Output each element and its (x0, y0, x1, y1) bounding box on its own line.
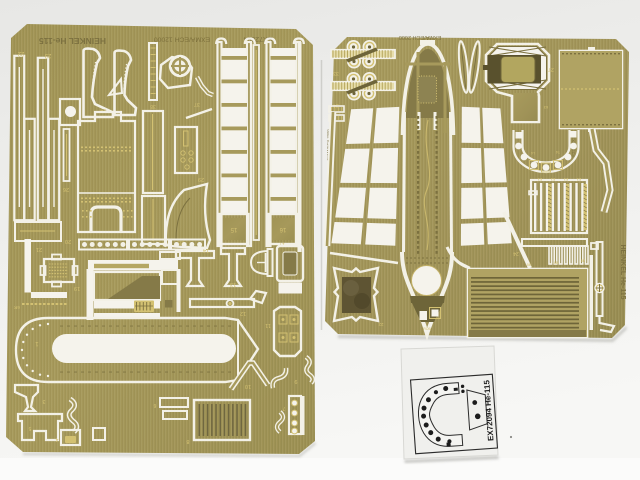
svg-text:63: 63 (543, 105, 548, 110)
svg-text:20: 20 (65, 238, 71, 244)
svg-text:33: 33 (333, 70, 339, 76)
svg-text:38: 38 (150, 103, 156, 109)
svg-text:HEINKEL He-115: HEINKEL He-115 (619, 244, 626, 299)
svg-text:5B: 5B (527, 263, 532, 267)
svg-text:13: 13 (230, 281, 236, 287)
svg-text:6R: 6R (13, 305, 20, 310)
svg-text:6: 6 (153, 402, 156, 408)
svg-text:22: 22 (378, 322, 384, 327)
svg-text:37: 37 (194, 101, 200, 107)
svg-text:T4: T4 (556, 150, 560, 154)
svg-text:23: 23 (44, 52, 51, 58)
svg-text:16: 16 (279, 226, 286, 232)
svg-text:6B: 6B (554, 261, 559, 265)
svg-text:E3: E3 (551, 177, 555, 181)
svg-text:EXMA/ECH 2000: EXMA/ECH 2000 (399, 34, 442, 40)
svg-text:11: 11 (265, 322, 271, 328)
svg-text:8B: 8B (581, 259, 586, 263)
svg-text:21: 21 (36, 246, 42, 252)
svg-text:4: 4 (55, 436, 58, 442)
svg-text:3: 3 (42, 398, 45, 404)
svg-text:8: 8 (186, 438, 189, 444)
svg-text:5: 5 (28, 425, 31, 431)
svg-text:9: 9 (294, 378, 297, 384)
svg-text:L4: L4 (531, 151, 535, 155)
svg-text:7: 7 (282, 405, 285, 411)
svg-text:HEINKEL He-115: HEINKEL He-115 (39, 36, 106, 46)
svg-text:15: 15 (230, 226, 237, 232)
svg-text:10: 10 (245, 383, 251, 389)
svg-text:24: 24 (513, 250, 519, 256)
svg-text:26: 26 (63, 186, 69, 192)
svg-text:14: 14 (203, 247, 209, 253)
svg-text:12: 12 (240, 310, 246, 316)
svg-text:19: 19 (74, 285, 80, 291)
svg-text:EXMA/ECH 12000: EXMA/ECH 12000 (154, 36, 211, 43)
svg-text:E3: E3 (564, 177, 568, 181)
svg-text:22: 22 (17, 50, 24, 56)
svg-text:29: 29 (198, 176, 204, 182)
svg-text:ROB: ROB (423, 327, 431, 331)
svg-text:E3: E3 (538, 177, 542, 181)
svg-text:27: 27 (548, 66, 554, 72)
svg-text:E3: E3 (577, 177, 581, 181)
